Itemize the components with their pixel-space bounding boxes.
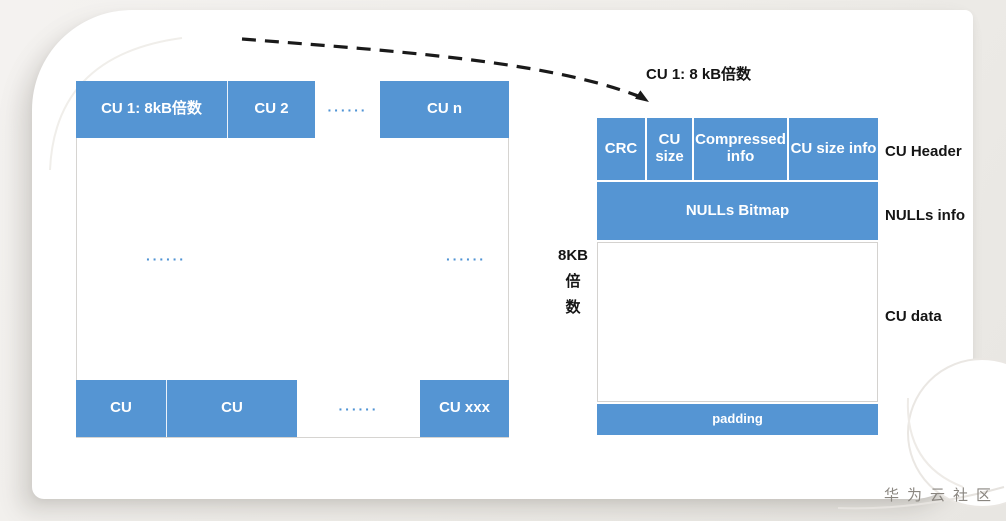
cu-file-bottom-row: CU CU ······ CU xxx xyxy=(76,380,509,437)
label-cu-data: CU data xyxy=(885,308,942,325)
callout-label: CU 1: 8 kB倍数 xyxy=(646,63,751,84)
middle-ellipsis-left: ······ xyxy=(138,250,194,268)
cu-file-top-row: CU 1: 8kB倍数 CU 2 ······ CU n xyxy=(76,81,509,138)
nulls-bitmap-row: NULLs Bitmap xyxy=(597,182,878,240)
cu-data-box xyxy=(597,242,878,402)
cu-header-row: CRC CU size Compressed info CU size info xyxy=(597,118,878,180)
cell-cu-size: CU size xyxy=(647,118,692,180)
top-row-ellipsis: ······ xyxy=(315,81,380,138)
label-cu-header: CU Header xyxy=(885,143,962,160)
community-watermark: 华为云社区 xyxy=(884,484,999,505)
bottom-row-ellipsis: ······ xyxy=(297,380,420,437)
size-label-line-2: 倍 xyxy=(549,269,597,295)
cell-cu1: CU 1: 8kB倍数 xyxy=(76,81,227,138)
cell-cu2: CU 2 xyxy=(227,81,315,138)
label-nulls-info: NULLs info xyxy=(885,207,965,224)
size-multiple-label: 8KB 倍 数 xyxy=(549,243,597,321)
padding-row: padding xyxy=(597,404,878,435)
cell-crc: CRC xyxy=(597,118,645,180)
cell-cu-size-info: CU size info xyxy=(789,118,878,180)
cell-compressed-info: Compressed info xyxy=(694,118,787,180)
size-label-line-1: 8KB xyxy=(549,243,597,269)
cell-cu-b: CU xyxy=(166,380,297,437)
middle-ellipsis-right: ······ xyxy=(438,250,494,268)
cell-cu-a: CU xyxy=(76,380,166,437)
size-label-line-3: 数 xyxy=(549,295,597,321)
cell-cu-xxx: CU xxx xyxy=(420,380,509,437)
cell-cun: CU n xyxy=(380,81,509,138)
